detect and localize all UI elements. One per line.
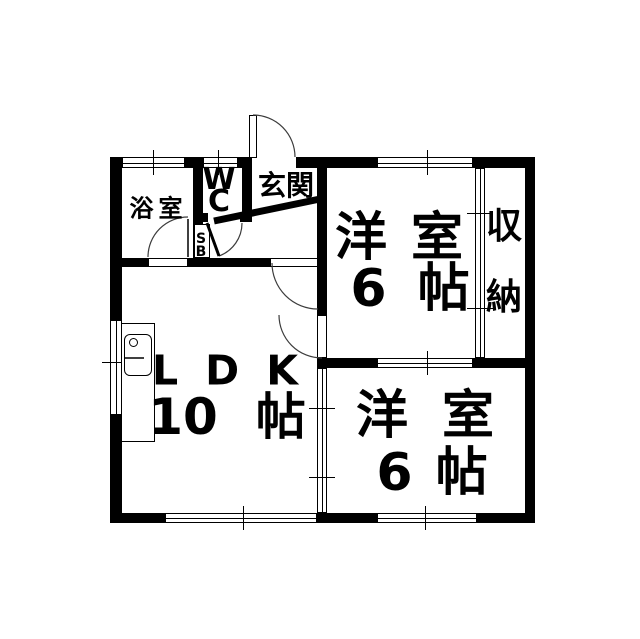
label-shoe-box: S B <box>196 233 207 259</box>
label-entrance: 玄関 <box>258 164 314 204</box>
label-ldk-name-part-0: L <box>152 351 178 392</box>
wc-door-leaf-line <box>207 223 219 256</box>
label-bedroom2-name-part-1: 室 <box>442 390 494 442</box>
label-bedroom1-name-part-0: 洋 <box>335 212 387 264</box>
label-bedroom2-size-part-0: 6 <box>376 447 412 499</box>
label-closet: 収 納 <box>486 191 522 333</box>
label-ldk-size: 10帖 <box>148 392 306 442</box>
label-bedroom1-name: 洋室 <box>335 212 463 264</box>
label-bathroom: 浴室 <box>125 189 188 224</box>
label-ldk-name-part-2: K <box>266 351 298 392</box>
label-bedroom1-size: 6帖 <box>350 263 469 315</box>
label-ldk-size-part-1: 帖 <box>256 392 306 442</box>
label-bedroom2-size-part-1: 帖 <box>436 447 488 499</box>
label-bedroom1-name-part-1: 室 <box>411 212 463 264</box>
label-bedroom1-size-part-1: 帖 <box>418 263 470 315</box>
floorplan-canvas: 浴室W C玄関S B収 納洋室6帖LDK10帖洋室6帖 <box>0 0 640 639</box>
label-ldk-name-part-1: D <box>205 351 239 392</box>
wc-door-arc <box>219 223 242 256</box>
label-bedroom2-name: 洋室 <box>356 390 494 442</box>
label-bedroom1-size-part-0: 6 <box>350 263 386 315</box>
doors-layer <box>0 0 640 639</box>
label-bedroom2-size: 6帖 <box>376 447 487 499</box>
label-wc: W C <box>202 169 235 213</box>
hall-ldk-door-arc <box>272 263 318 309</box>
entrance-door-arc <box>253 115 295 157</box>
label-ldk-name: LDK <box>152 351 298 392</box>
label-ldk-size-part-0: 10 <box>148 392 218 442</box>
label-bedroom2-name-part-0: 洋 <box>356 390 408 442</box>
